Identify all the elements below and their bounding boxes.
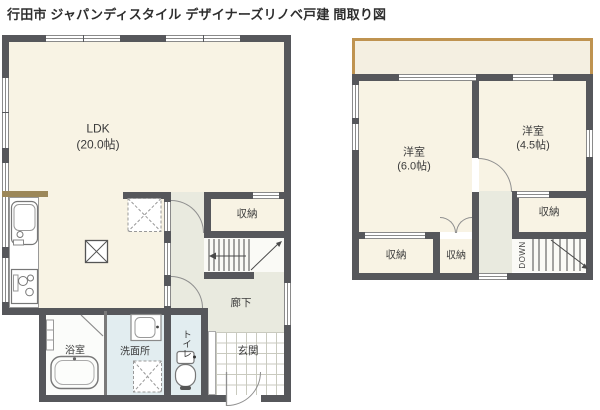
window — [284, 283, 291, 325]
hallway-2f — [479, 191, 512, 273]
window — [166, 35, 203, 42]
window — [513, 74, 553, 81]
window — [352, 124, 359, 150]
room-label-western-1: 洋室 (6.0帖) — [397, 146, 431, 175]
wall — [164, 275, 171, 286]
room-label-western-2: 洋室 (4.5帖) — [516, 125, 550, 154]
western-1-name: 洋室 — [403, 147, 425, 159]
room-label-storage-1f: 収納 — [237, 208, 258, 222]
wall — [204, 272, 254, 279]
wall — [352, 232, 365, 239]
wall — [201, 308, 208, 395]
wall — [204, 231, 284, 238]
opening — [479, 273, 507, 280]
floor-plan: 行田市 ジャパンディスタイル デザイナーズリノベ戸建 間取り図 — [0, 0, 600, 410]
sliding-door — [164, 202, 171, 231]
western-2-name: 洋室 — [522, 126, 544, 138]
window — [204, 35, 240, 42]
window — [2, 113, 9, 148]
balcony — [352, 38, 593, 75]
page-title: 行田市 ジャパンディスタイル デザイナーズリノベ戸建 間取り図 — [7, 4, 386, 23]
wall — [279, 192, 284, 199]
room-label-toilet: トイレ — [179, 330, 191, 359]
stairs-area-1f — [204, 238, 284, 272]
wall — [164, 231, 171, 243]
sliding-door — [164, 243, 171, 275]
wall-thin-bath-divider — [104, 311, 107, 395]
sliding-door — [164, 286, 171, 306]
room-label-washroom: 洗面所 — [120, 346, 150, 359]
sliding-door — [365, 232, 425, 239]
wall — [472, 74, 479, 158]
wall — [284, 35, 291, 402]
window — [352, 85, 359, 118]
wall — [433, 232, 440, 273]
window — [84, 35, 120, 42]
room-label-hallway: 廊下 — [231, 297, 252, 311]
window — [2, 78, 9, 112]
wall — [164, 192, 171, 202]
kitchen-counter — [9, 197, 39, 308]
window — [2, 163, 9, 191]
western-1-size: (6.0帖) — [397, 161, 431, 173]
ldk-name: LDK — [86, 121, 109, 135]
wall — [39, 308, 208, 315]
room-label-bathroom: 浴室 — [65, 345, 85, 358]
room-label-ldk: LDK (20.0帖) — [76, 121, 119, 152]
window — [399, 74, 476, 81]
stairs-down-label: DOWN — [518, 241, 528, 268]
western-2-size: (4.5帖) — [516, 140, 550, 152]
wall — [512, 191, 519, 238]
room-label-storage-2f-left: 収納 — [386, 249, 407, 263]
room-ldk — [9, 42, 284, 192]
wall — [204, 192, 253, 199]
wall — [586, 74, 593, 280]
wall — [512, 232, 593, 239]
ldk-size: (20.0帖) — [76, 137, 119, 151]
wall — [164, 306, 171, 395]
wall — [39, 308, 46, 402]
sliding-door — [253, 192, 279, 199]
room-label-entrance: 玄関 — [238, 345, 259, 359]
window — [586, 130, 593, 157]
room-label-storage-2f-middle: 収納 — [446, 250, 466, 263]
sliding-door — [517, 191, 549, 198]
room-label-storage-2f-right: 収納 — [539, 206, 560, 220]
window — [2, 197, 9, 247]
entrance-step — [208, 331, 216, 395]
window — [2, 258, 9, 302]
window — [46, 35, 83, 42]
wall — [472, 192, 479, 280]
